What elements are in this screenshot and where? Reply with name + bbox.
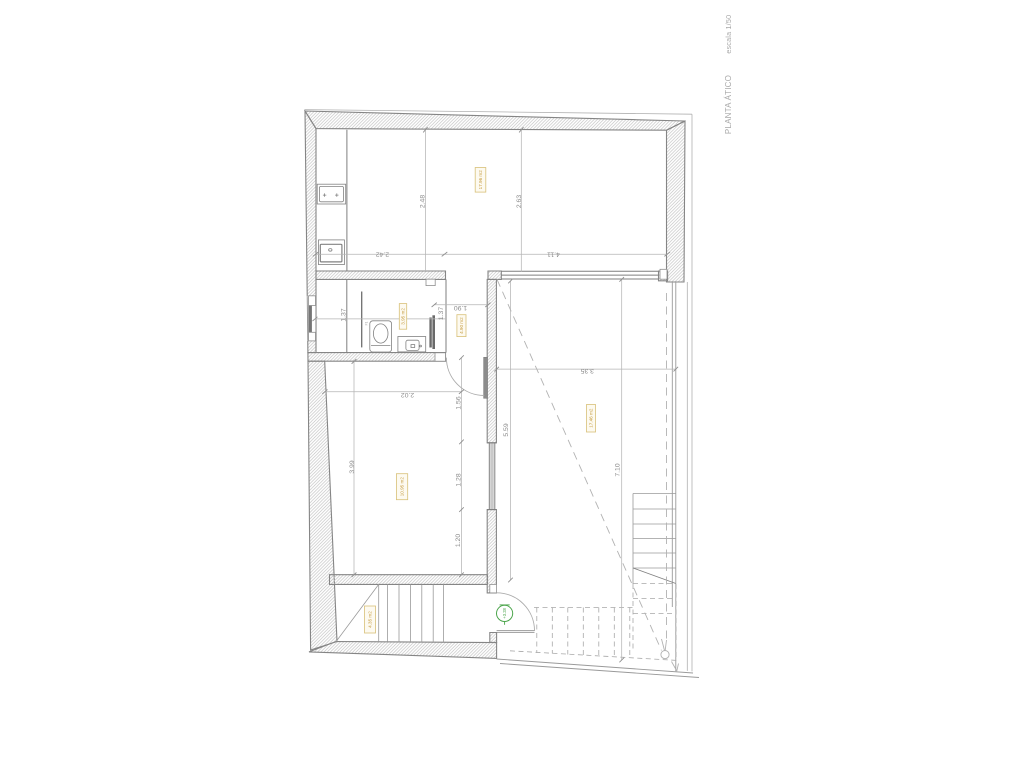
svg-text:F1: F1 bbox=[365, 321, 369, 325]
svg-text:2.63: 2.63 bbox=[516, 195, 523, 208]
svg-text:escala 1/50: escala 1/50 bbox=[724, 15, 733, 54]
svg-text:7.10: 7.10 bbox=[615, 463, 622, 476]
svg-text:1.37: 1.37 bbox=[438, 307, 445, 320]
svg-text:2.42: 2.42 bbox=[376, 251, 389, 258]
svg-text:4.35 m2: 4.35 m2 bbox=[368, 611, 373, 628]
svg-text:2.48: 2.48 bbox=[420, 195, 427, 208]
svg-text:4.90 m2: 4.90 m2 bbox=[459, 317, 464, 334]
svg-text:17.96 m2: 17.96 m2 bbox=[478, 170, 483, 190]
svg-text:3.35: 3.35 bbox=[580, 367, 593, 374]
svg-text:3.95 m2: 3.95 m2 bbox=[401, 308, 406, 325]
svg-text:1.37: 1.37 bbox=[341, 308, 348, 321]
svg-text:3.99: 3.99 bbox=[349, 460, 356, 473]
svg-text:17.46 m2: 17.46 m2 bbox=[589, 408, 594, 428]
svg-text:1.20: 1.20 bbox=[455, 534, 462, 547]
svg-text:1.28: 1.28 bbox=[456, 473, 463, 486]
svg-text:4.11: 4.11 bbox=[547, 251, 560, 258]
svg-text:PLANTA ÁTICO: PLANTA ÁTICO bbox=[724, 75, 733, 134]
svg-text:5.59: 5.59 bbox=[503, 423, 510, 436]
svg-text:10.95 m2: 10.95 m2 bbox=[400, 477, 405, 497]
svg-text:1.56: 1.56 bbox=[456, 396, 463, 409]
svg-text:2.02: 2.02 bbox=[401, 391, 414, 398]
svg-text:+3.28: +3.28 bbox=[502, 607, 507, 618]
svg-text:1.90: 1.90 bbox=[454, 304, 467, 311]
